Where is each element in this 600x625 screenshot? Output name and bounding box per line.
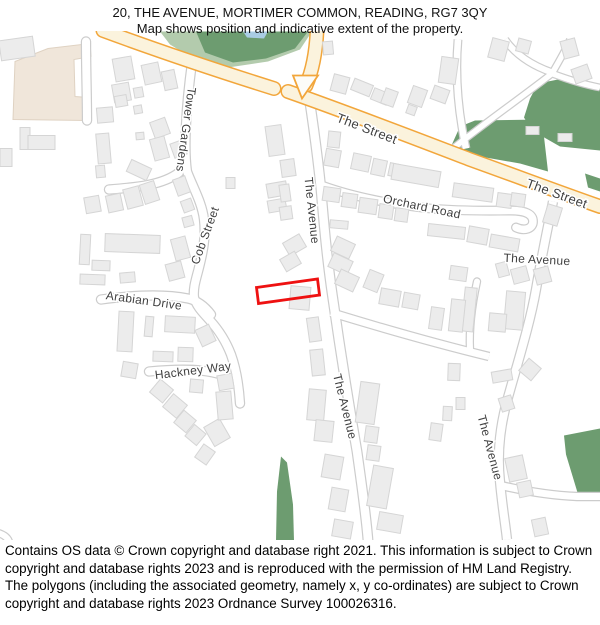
building — [531, 517, 548, 537]
building — [358, 197, 378, 214]
building — [350, 78, 373, 97]
building — [310, 349, 326, 376]
building — [216, 391, 233, 420]
building — [279, 206, 293, 221]
building — [96, 107, 113, 123]
building — [112, 56, 135, 82]
building — [226, 178, 235, 189]
building — [306, 317, 321, 342]
street-label-tower-gardens: Tower Gardens — [173, 86, 199, 172]
building — [280, 251, 302, 272]
building — [543, 204, 563, 227]
building — [429, 307, 445, 331]
building — [324, 148, 342, 167]
building — [526, 127, 539, 135]
building — [121, 361, 138, 378]
building — [117, 311, 134, 352]
building — [161, 69, 178, 90]
building — [355, 381, 380, 424]
building — [314, 420, 334, 443]
building — [204, 418, 231, 446]
property-address-title: 20, THE AVENUE, MORTIMER COMMON, READING… — [0, 5, 600, 21]
building — [332, 519, 354, 539]
building — [120, 272, 136, 283]
building — [105, 193, 123, 213]
building — [370, 158, 387, 177]
building — [516, 38, 532, 54]
building — [448, 299, 465, 332]
building — [328, 487, 349, 512]
map-svg: The Street The Street Tower Gardens Cob … — [0, 31, 600, 540]
building — [79, 234, 91, 264]
building — [105, 234, 161, 254]
map-header: 20, THE AVENUE, MORTIMER COMMON, READING… — [0, 5, 600, 37]
building — [366, 445, 381, 462]
building — [330, 220, 349, 230]
street-label-orchard-road: Orchard Road — [382, 191, 462, 221]
building — [150, 117, 171, 138]
green-area — [564, 429, 600, 498]
building — [377, 512, 404, 534]
building — [165, 316, 196, 334]
building — [144, 316, 154, 337]
building — [0, 149, 12, 167]
building — [279, 184, 291, 202]
building — [406, 104, 418, 116]
building — [322, 186, 341, 202]
building — [467, 226, 489, 245]
building — [95, 165, 105, 178]
building — [189, 379, 203, 393]
building — [427, 224, 465, 240]
building — [438, 56, 458, 84]
street-label-the-avenue-lower: The Avenue — [330, 372, 360, 440]
building — [488, 313, 507, 332]
building — [335, 269, 360, 292]
building — [341, 193, 358, 209]
building — [505, 455, 528, 482]
building — [133, 87, 144, 98]
green-area — [585, 174, 600, 192]
building — [443, 406, 453, 420]
copyright-notice: Contains OS data © Crown copyright and d… — [0, 540, 600, 614]
building — [322, 41, 333, 55]
building — [141, 62, 162, 85]
building — [0, 36, 35, 61]
building — [488, 38, 510, 62]
minor-road — [86, 42, 87, 121]
building — [510, 193, 526, 208]
building — [364, 426, 379, 444]
building — [182, 215, 194, 227]
building — [407, 85, 427, 107]
building — [448, 363, 461, 380]
building — [558, 134, 572, 142]
building — [327, 131, 341, 148]
building — [351, 153, 372, 172]
building — [28, 136, 55, 150]
building — [452, 183, 494, 202]
building — [136, 132, 145, 140]
building — [84, 195, 102, 213]
building — [114, 95, 128, 108]
building — [391, 163, 441, 187]
building — [180, 198, 194, 213]
building — [126, 159, 151, 180]
building — [170, 236, 190, 261]
building — [510, 266, 529, 285]
building — [133, 105, 142, 114]
building — [92, 260, 110, 271]
building — [307, 389, 327, 421]
building — [517, 480, 534, 498]
building — [456, 398, 465, 410]
street-label-the-avenue-east-horizontal: The Avenue — [503, 251, 570, 268]
building — [80, 274, 105, 285]
map-subtitle: Map shows position and indicative extent… — [0, 21, 600, 37]
building — [217, 373, 234, 390]
building — [321, 454, 344, 480]
building — [367, 465, 394, 509]
building — [96, 133, 112, 164]
building — [195, 444, 216, 465]
building — [402, 292, 420, 310]
building — [165, 261, 185, 282]
building — [379, 288, 401, 307]
building — [429, 423, 443, 442]
building — [153, 351, 173, 362]
building — [449, 265, 468, 281]
building — [149, 136, 169, 161]
building — [280, 159, 296, 178]
map-canvas: The Street The Street Tower Gardens Cob … — [0, 31, 600, 540]
building — [178, 347, 193, 362]
building — [265, 125, 285, 157]
building — [330, 74, 350, 95]
building — [503, 291, 525, 331]
building — [430, 85, 450, 104]
building — [489, 234, 520, 252]
green-area — [276, 457, 294, 541]
